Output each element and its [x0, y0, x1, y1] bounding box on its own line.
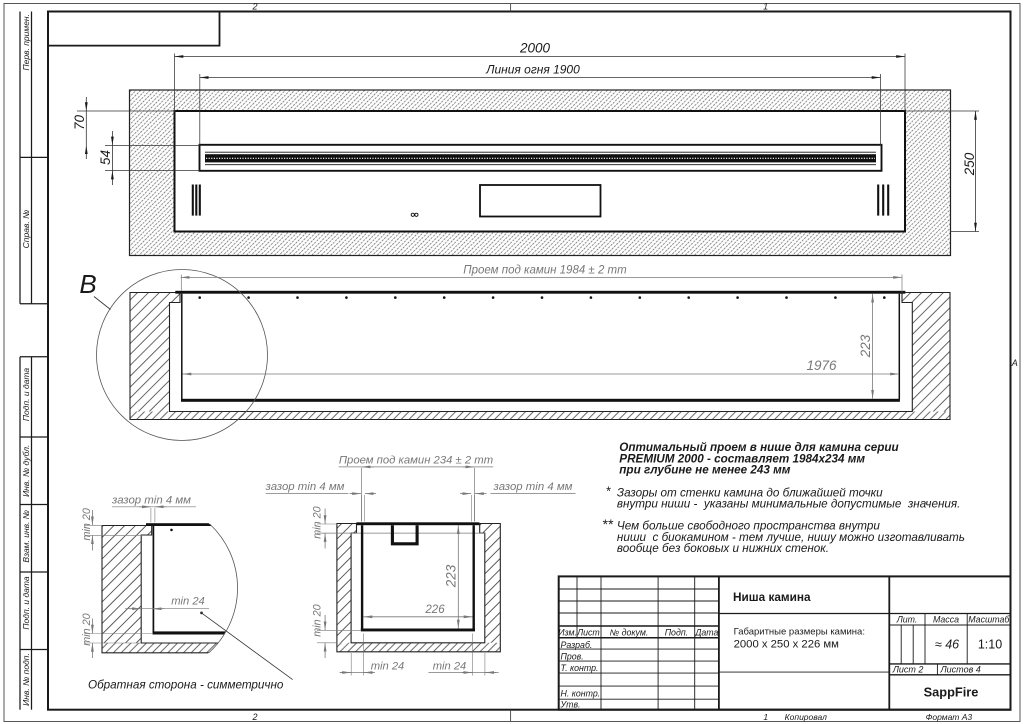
svg-text:вообще без боковых и нижних ст: вообще без боковых и нижних стенок. [617, 542, 829, 555]
svg-text:зазор min 4 мм: зазор min 4 мм [111, 495, 191, 507]
svg-text:1:10: 1:10 [978, 638, 1002, 652]
svg-text:Пров.: Пров. [561, 652, 584, 662]
svg-text:Подп.: Подп. [665, 627, 688, 637]
svg-text:70: 70 [72, 115, 87, 131]
svg-text:Изм.: Изм. [558, 627, 577, 637]
svg-text:Инв. № дубл.: Инв. № дубл. [21, 445, 31, 497]
svg-text:min 24: min 24 [371, 660, 405, 672]
svg-text:1: 1 [763, 712, 768, 722]
svg-text:Габаритные размеры камина:: Габаритные размеры камина: [734, 626, 865, 637]
svg-text:Инв. № подп.: Инв. № подп. [21, 653, 31, 706]
svg-text:1976: 1976 [806, 358, 837, 373]
svg-text:№ докум.: № докум. [610, 627, 649, 637]
svg-text:Взам. инв. №: Взам. инв. № [21, 510, 31, 563]
svg-text:Проем под камин 1984 ± 2 mm: Проем под камин 1984 ± 2 mm [463, 265, 627, 277]
svg-text:Обратная сторона - симметрично: Обратная сторона - симметрично [88, 679, 284, 692]
svg-text:при глубине не менее 243 мм: при глубине не менее 243 мм [619, 464, 790, 477]
svg-text:Дата: Дата [694, 627, 718, 637]
svg-text:min 20: min 20 [81, 613, 93, 645]
svg-text:min 20: min 20 [312, 506, 324, 538]
svg-text:min 20: min 20 [81, 508, 93, 540]
svg-text:Копировал: Копировал [785, 712, 827, 722]
svg-text:1: 1 [763, 2, 768, 12]
svg-text:Ниша камина: Ниша камина [733, 590, 811, 604]
svg-text:Лит.: Лит. [896, 615, 918, 625]
svg-text:Лист: Лист [576, 627, 600, 637]
svg-text:Т. контр.: Т. контр. [561, 663, 599, 673]
svg-text:2000 х 250 х 226 мм: 2000 х 250 х 226 мм [734, 638, 839, 650]
svg-text:Проем под камин 234 ± 2 mm: Проем под камин 234 ± 2 mm [339, 455, 493, 467]
svg-text:Масса: Масса [933, 615, 959, 625]
svg-text:54: 54 [98, 150, 113, 165]
svg-text:**: ** [602, 516, 613, 532]
svg-text:Линия огня 1900: Линия огня 1900 [485, 63, 580, 77]
svg-text:Разраб.: Разраб. [561, 640, 593, 650]
svg-text:min 24: min 24 [433, 660, 467, 672]
svg-text:≈ 46: ≈ 46 [935, 638, 959, 652]
svg-text:Формат А3: Формат А3 [926, 712, 973, 722]
svg-text:Масштаб: Масштаб [968, 615, 1010, 625]
svg-text:В: В [79, 269, 96, 299]
svg-text:А: А [1011, 358, 1018, 368]
svg-text:250: 250 [962, 152, 977, 176]
svg-text:min 24: min 24 [171, 596, 205, 608]
svg-text:223: 223 [444, 564, 459, 588]
svg-text:min 20: min 20 [312, 604, 324, 636]
svg-text:внутри ниши - указаны минимал: внутри ниши - указаны минимальные допуст… [617, 498, 961, 511]
svg-text:Лист 2: Лист 2 [892, 664, 924, 674]
svg-text:зазор min 4 мм: зазор min 4 мм [493, 481, 573, 493]
svg-text:Подп. и дата: Подп. и дата [21, 368, 31, 421]
svg-text:2: 2 [251, 712, 257, 722]
svg-text:Подп. и дата: Подп. и дата [21, 576, 31, 629]
svg-text:Н. контр.: Н. контр. [561, 689, 601, 699]
svg-text:Листов 4: Листов 4 [940, 664, 981, 674]
svg-text:223: 223 [858, 334, 873, 358]
svg-text:226: 226 [424, 604, 445, 616]
svg-text:Утв.: Утв. [560, 700, 581, 710]
svg-text:Справ. №: Справ. № [21, 210, 31, 249]
svg-text:зазор min 4 мм: зазор min 4 мм [265, 481, 345, 493]
svg-text:SappFire: SappFire [924, 685, 979, 700]
svg-text:Перв. примен.: Перв. примен. [21, 14, 31, 71]
svg-text:2: 2 [251, 2, 257, 12]
svg-text:2000: 2000 [519, 41, 551, 56]
